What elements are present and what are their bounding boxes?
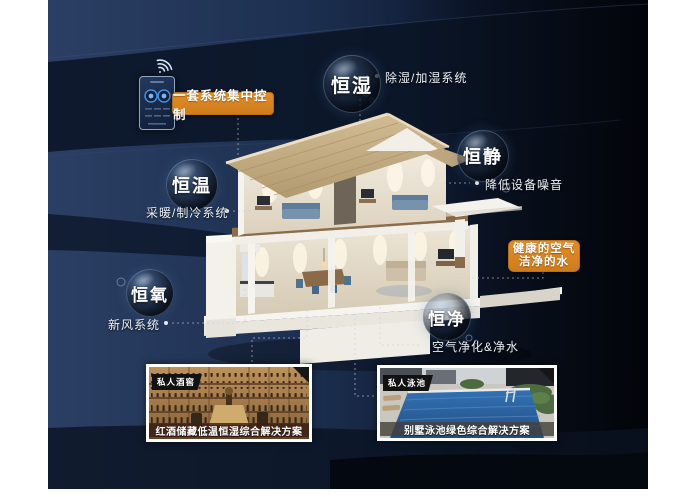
heating-cooling-system-label: 采暖/制冷系统 (146, 204, 228, 221)
smart-control-panel (139, 76, 175, 130)
poster-canvas: 一套系统集中控制 健康的空气 洁净的水 恒湿 恒静 恒温 恒氧 恒净 除湿/加湿… (48, 0, 648, 489)
healthy-air-line: 健康的空气 (513, 243, 576, 256)
private-pool-photo: 私人泳池 别墅泳池绿色综合解决方案 (380, 368, 554, 438)
bubble-constant-quiet: 恒静 (457, 130, 509, 182)
bubble-constant-purity-label: 恒净 (428, 305, 466, 330)
wine-cellar-tag: 私人酒窖 (152, 374, 202, 390)
bubble-constant-temperature-label: 恒温 (172, 172, 212, 198)
private-pool-tag: 私人泳池 (383, 375, 433, 391)
dehumidify-humidify-system-label: 除湿/加湿系统 (385, 69, 467, 86)
private-pool-card: 私人泳池 别墅泳池绿色综合解决方案 (377, 365, 557, 441)
wine-card-corner-ribbon (293, 367, 309, 383)
wine-cellar-card: 私人酒窖 红酒储藏低温恒湿综合解决方案 (146, 364, 312, 442)
fresh-air-system-label: 新风系统 (108, 316, 160, 333)
air-water-purification-label: 空气净化&净水 (432, 338, 519, 355)
clean-water-line: 洁净的水 (519, 256, 569, 269)
wine-cellar-caption: 红酒储藏低温恒湿综合解决方案 (149, 423, 309, 437)
bubble-constant-oxygen: 恒氧 (126, 269, 174, 317)
bubble-constant-humidity-label: 恒湿 (331, 71, 373, 98)
private-pool-caption: 别墅泳池绿色综合解决方案 (380, 422, 554, 436)
wine-cellar-photo: 私人酒窖 红酒储藏低温恒湿综合解决方案 (149, 367, 309, 439)
pool-card-corner-ribbon (538, 368, 554, 384)
central-control-badge: 一套系统集中控制 (172, 92, 274, 115)
noise-reduction-label: 降低设备噪音 (485, 176, 563, 193)
bubble-constant-oxygen-label: 恒氧 (131, 281, 169, 306)
bubble-constant-humidity: 恒湿 (323, 55, 381, 113)
poster-page: { "badges": { "control": "一套系统集中控制", "he… (0, 0, 700, 497)
phone-screen (140, 77, 174, 129)
central-control-label: 一套系统集中控制 (173, 85, 273, 123)
healthy-air-water-badge: 健康的空气 洁净的水 (508, 240, 580, 272)
bubble-constant-purity: 恒净 (423, 293, 471, 341)
bubble-constant-quiet-label: 恒静 (463, 143, 503, 169)
